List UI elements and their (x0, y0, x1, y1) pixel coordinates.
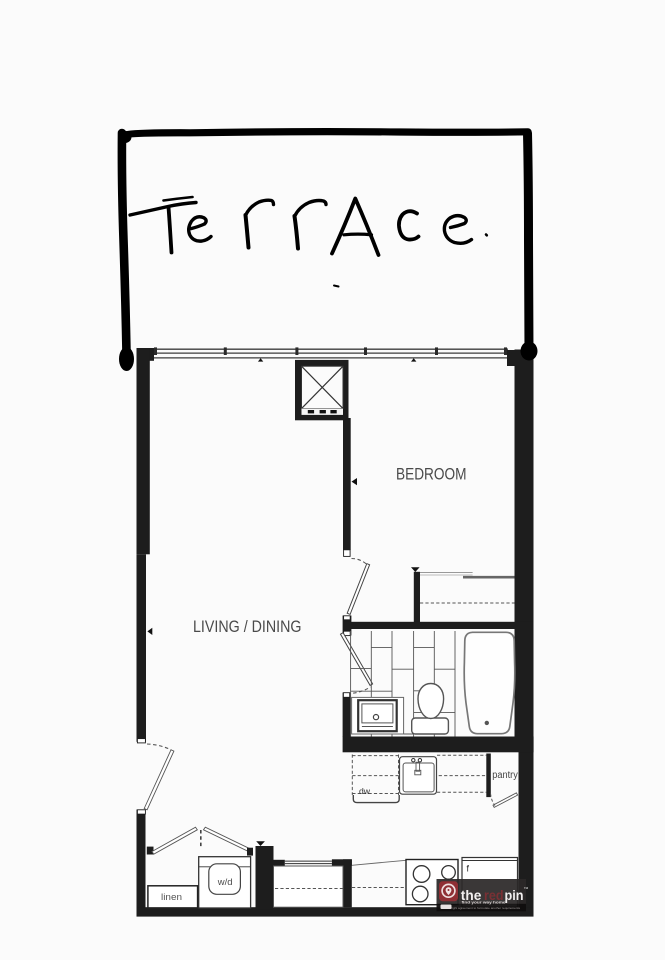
svg-text:w/d: w/d (217, 877, 233, 887)
svg-text:dw: dw (359, 786, 371, 796)
svg-text:find your way home: find your way home (462, 901, 506, 905)
svg-text:linen: linen (161, 892, 182, 902)
svg-text:™: ™ (524, 887, 529, 893)
svg-text:BEDROOM: BEDROOM (396, 466, 467, 484)
svg-text:LIVING / DINING: LIVING / DINING (193, 618, 302, 636)
svg-text:pin: pin (505, 888, 524, 903)
svg-text:pantry: pantry (492, 770, 518, 781)
svg-text:* The right agreement to form: * The right agreement to formulate anoth… (443, 906, 520, 910)
